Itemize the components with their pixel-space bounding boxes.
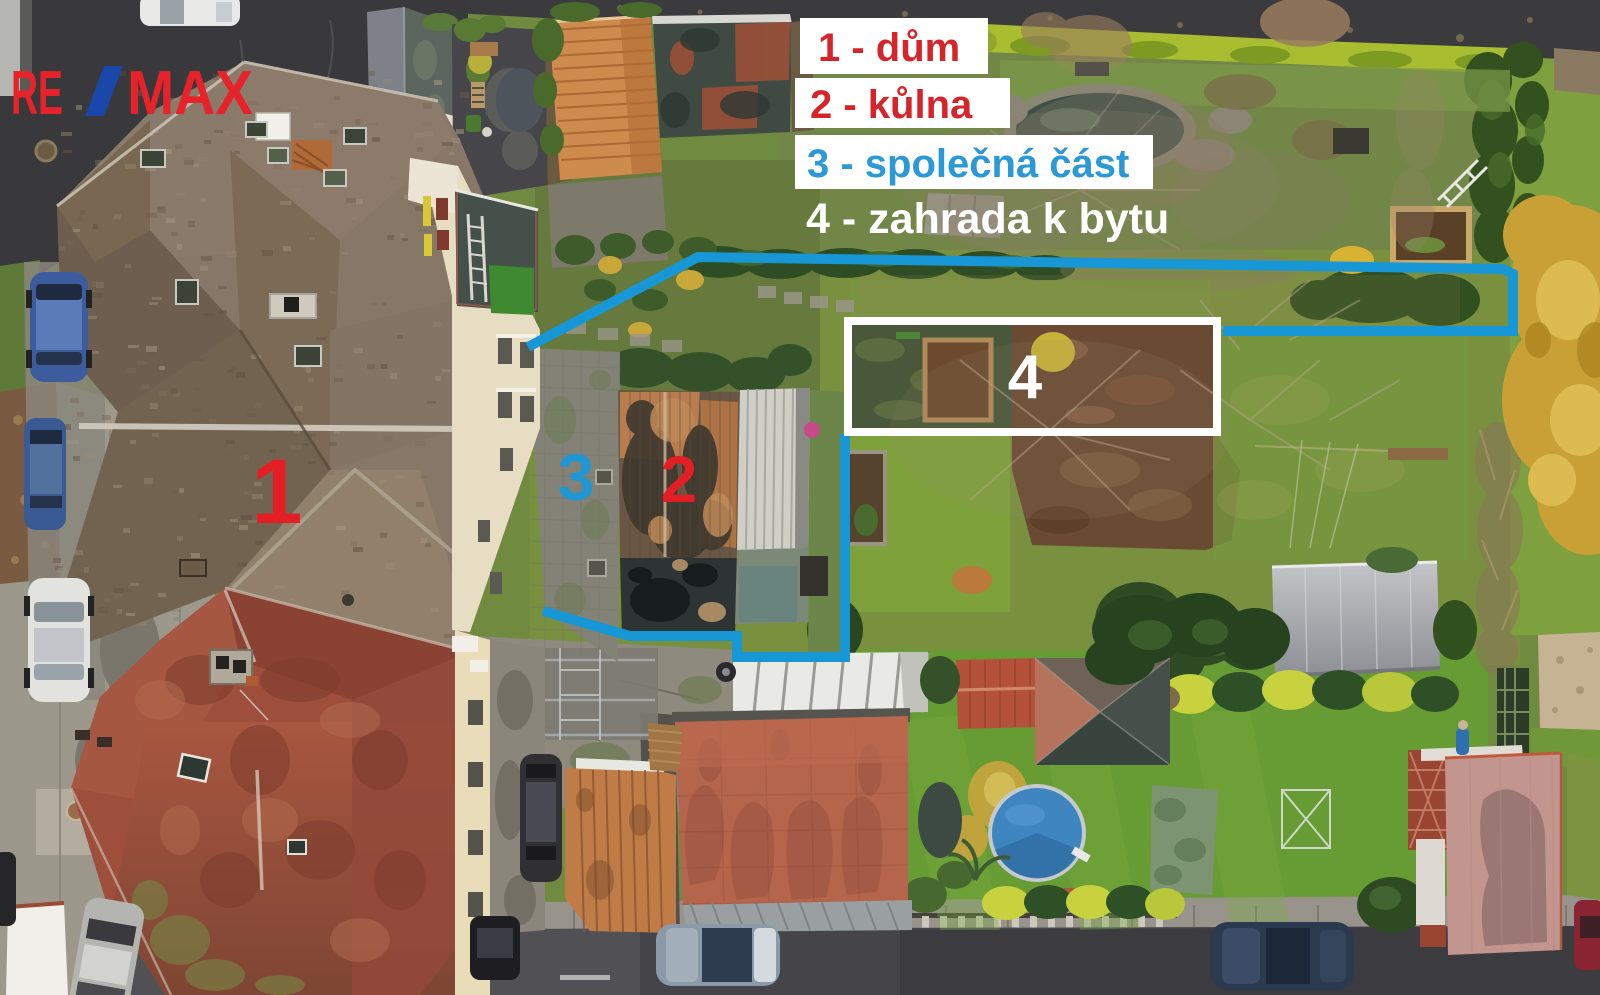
svg-text:2 - kůlna: 2 - kůlna [810,83,973,127]
svg-text:3: 3 [558,440,595,514]
svg-text:4: 4 [1008,343,1043,412]
svg-text:1 - dům: 1 - dům [818,26,960,70]
svg-text:4 - zahrada k bytu: 4 - zahrada k bytu [806,195,1169,243]
svg-text:1: 1 [251,441,302,543]
svg-text:2: 2 [661,442,698,516]
svg-text:RE: RE [11,59,63,128]
svg-text:MAX: MAX [127,59,253,128]
svg-text:3 - společná část: 3 - společná část [807,142,1129,186]
